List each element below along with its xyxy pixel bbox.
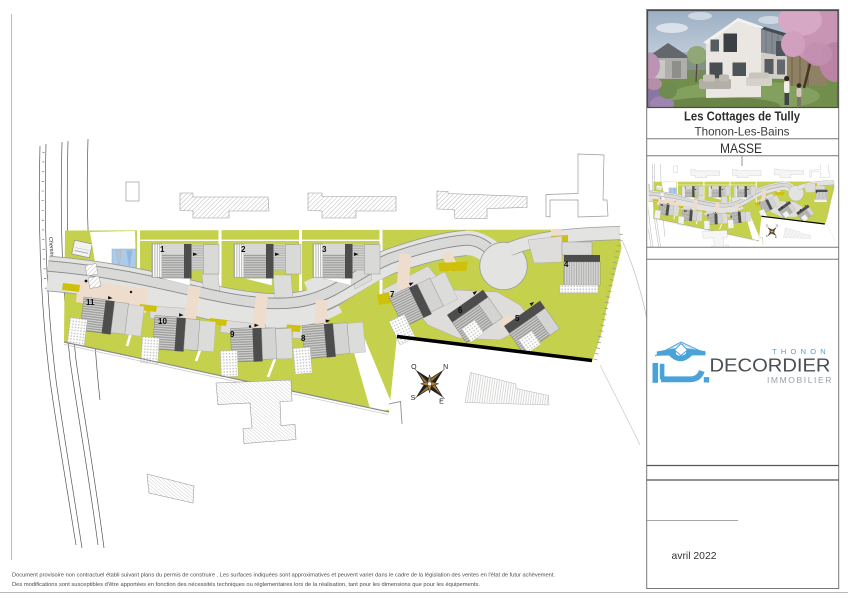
svg-text:N: N: [443, 364, 448, 371]
svg-text:O: O: [411, 364, 417, 371]
svg-text:2: 2: [241, 245, 246, 254]
svg-text:IMMOBILIER: IMMOBILIER: [767, 375, 833, 385]
svg-text:8: 8: [301, 334, 306, 343]
svg-text:7: 7: [390, 290, 395, 299]
svg-text:9: 9: [230, 330, 235, 339]
svg-text:Les Cottages de Tully: Les Cottages de Tully: [684, 110, 800, 124]
svg-text:MASSE: MASSE: [720, 141, 762, 156]
svg-text:6: 6: [458, 306, 463, 315]
svg-text:10: 10: [158, 317, 167, 326]
svg-text:3: 3: [322, 245, 327, 254]
svg-text:Thonon-Les-Bains: Thonon-Les-Bains: [695, 125, 790, 139]
svg-text:5: 5: [515, 314, 520, 323]
svg-text:S: S: [411, 395, 416, 402]
svg-text:4: 4: [564, 260, 569, 269]
svg-text:11: 11: [86, 298, 95, 307]
svg-text:Document provisoire non contra: Document provisoire non contractuel étab…: [12, 573, 555, 579]
svg-text:avril 2022: avril 2022: [672, 550, 717, 562]
svg-text:Des modifications sont suscept: Des modifications sont susceptibles d'êt…: [12, 582, 480, 588]
svg-text:1: 1: [160, 245, 165, 254]
svg-text:E: E: [439, 398, 444, 405]
svg-text:DECORDIER: DECORDIER: [710, 355, 831, 376]
